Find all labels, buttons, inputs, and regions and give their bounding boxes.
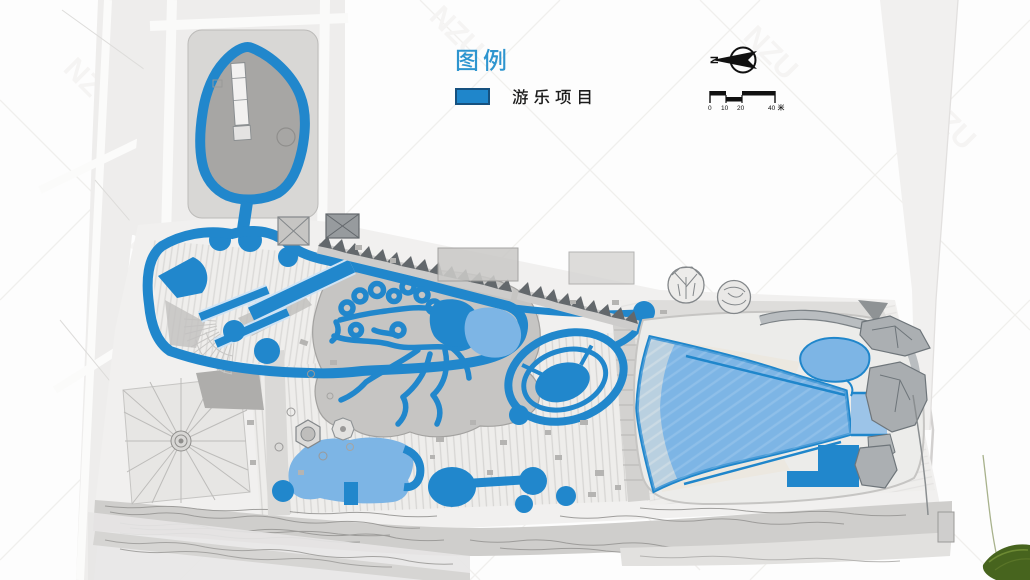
svg-text:0: 0 — [708, 105, 712, 112]
svg-text:10: 10 — [721, 105, 729, 112]
svg-text:N: N — [709, 56, 721, 64]
svg-text:40: 40 — [768, 105, 776, 112]
svg-text:20: 20 — [737, 105, 745, 112]
